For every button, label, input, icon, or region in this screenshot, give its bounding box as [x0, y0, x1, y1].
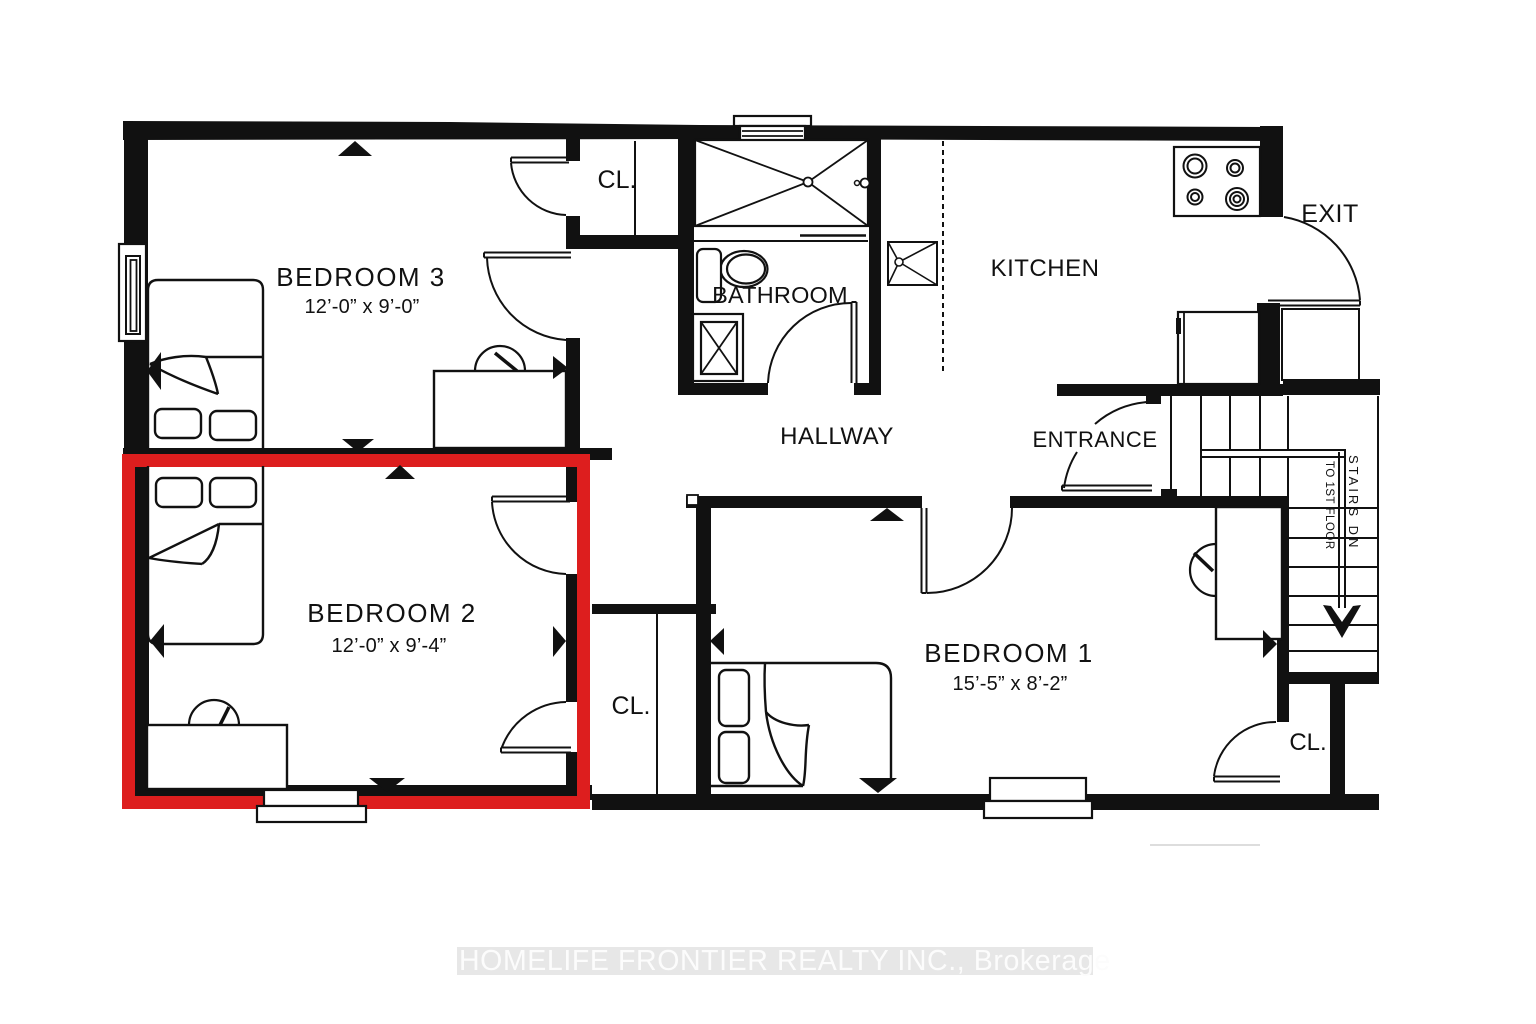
- svg-text:BEDROOM 3: BEDROOM 3: [276, 262, 446, 292]
- svg-text:HOMELIFE FRONTIER REALTY INC.,: HOMELIFE FRONTIER REALTY INC., Brokerage: [459, 945, 1111, 977]
- svg-text:KITCHEN: KITCHEN: [991, 255, 1100, 282]
- svg-text:CL.: CL.: [1289, 729, 1326, 756]
- svg-text:EXIT: EXIT: [1301, 200, 1359, 228]
- svg-text:BATHROOM: BATHROOM: [712, 282, 848, 308]
- svg-text:CL.: CL.: [598, 166, 637, 194]
- svg-text:BEDROOM 2: BEDROOM 2: [307, 598, 477, 628]
- svg-text:STAIRS DN: STAIRS DN: [1346, 455, 1361, 550]
- svg-text:TO 1ST FLOOR: TO 1ST FLOOR: [1323, 461, 1335, 550]
- svg-text:12’-0” x 9’-4”: 12’-0” x 9’-4”: [331, 635, 446, 657]
- svg-text:HALLWAY: HALLWAY: [780, 423, 894, 450]
- svg-text:BEDROOM 1: BEDROOM 1: [924, 638, 1094, 668]
- svg-text:15’-5” x 8’-2”: 15’-5” x 8’-2”: [952, 673, 1067, 695]
- svg-text:12’-0” x 9’-0”: 12’-0” x 9’-0”: [304, 296, 419, 318]
- svg-text:CL.: CL.: [612, 692, 651, 720]
- svg-text:ENTRANCE: ENTRANCE: [1032, 427, 1157, 452]
